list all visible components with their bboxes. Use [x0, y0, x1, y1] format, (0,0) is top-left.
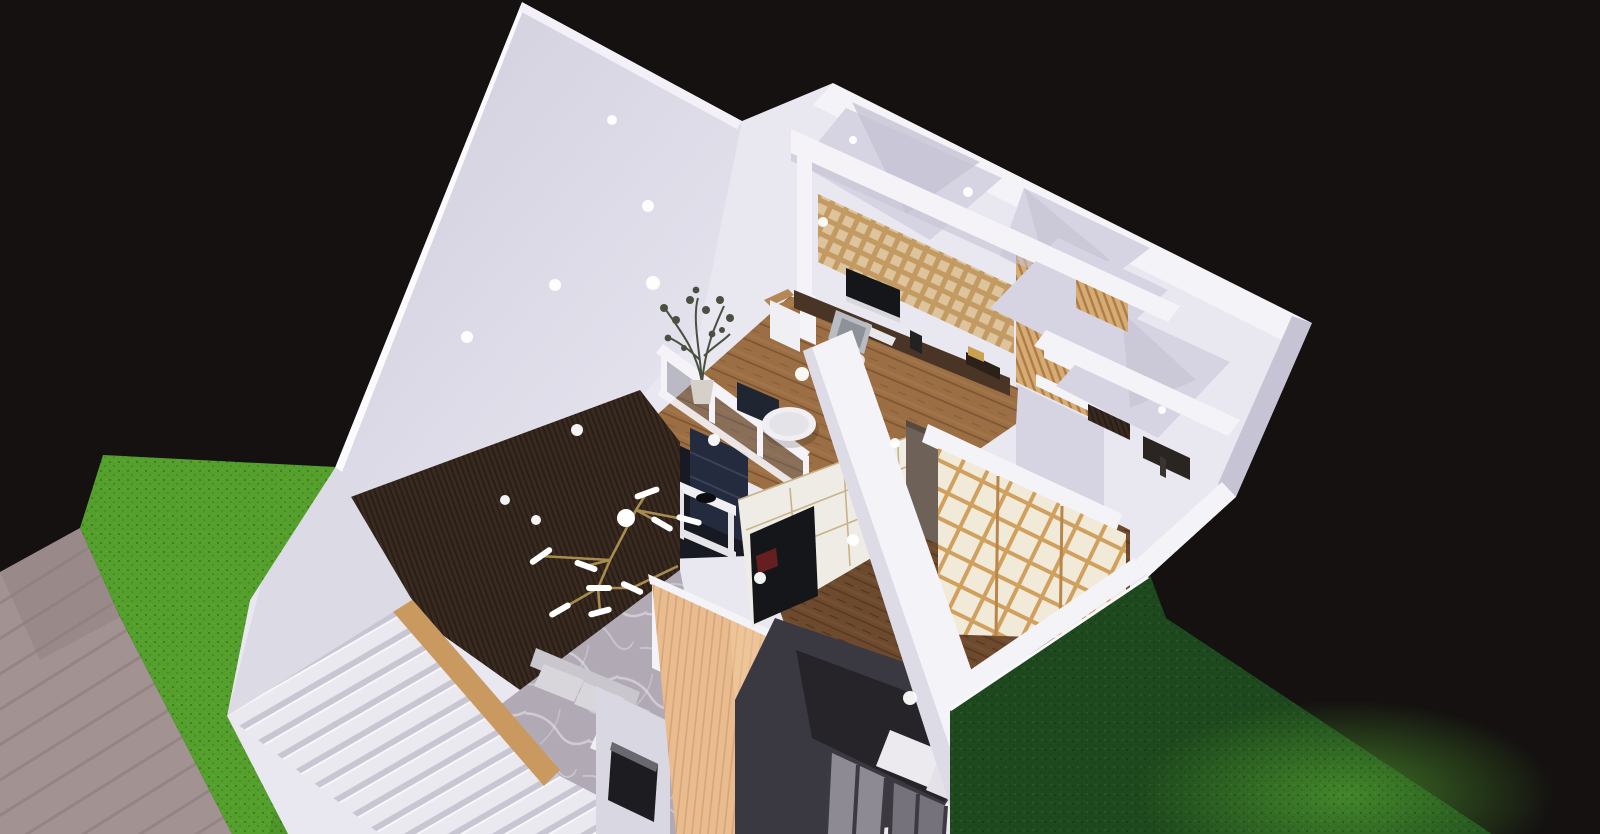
render-viewport[interactable]: [0, 0, 1600, 834]
beam-column: [797, 150, 812, 312]
black-bowl: [696, 493, 716, 503]
pendant-globe: [617, 509, 635, 527]
house-render: [0, 0, 1600, 834]
plant-pot: [690, 380, 714, 404]
